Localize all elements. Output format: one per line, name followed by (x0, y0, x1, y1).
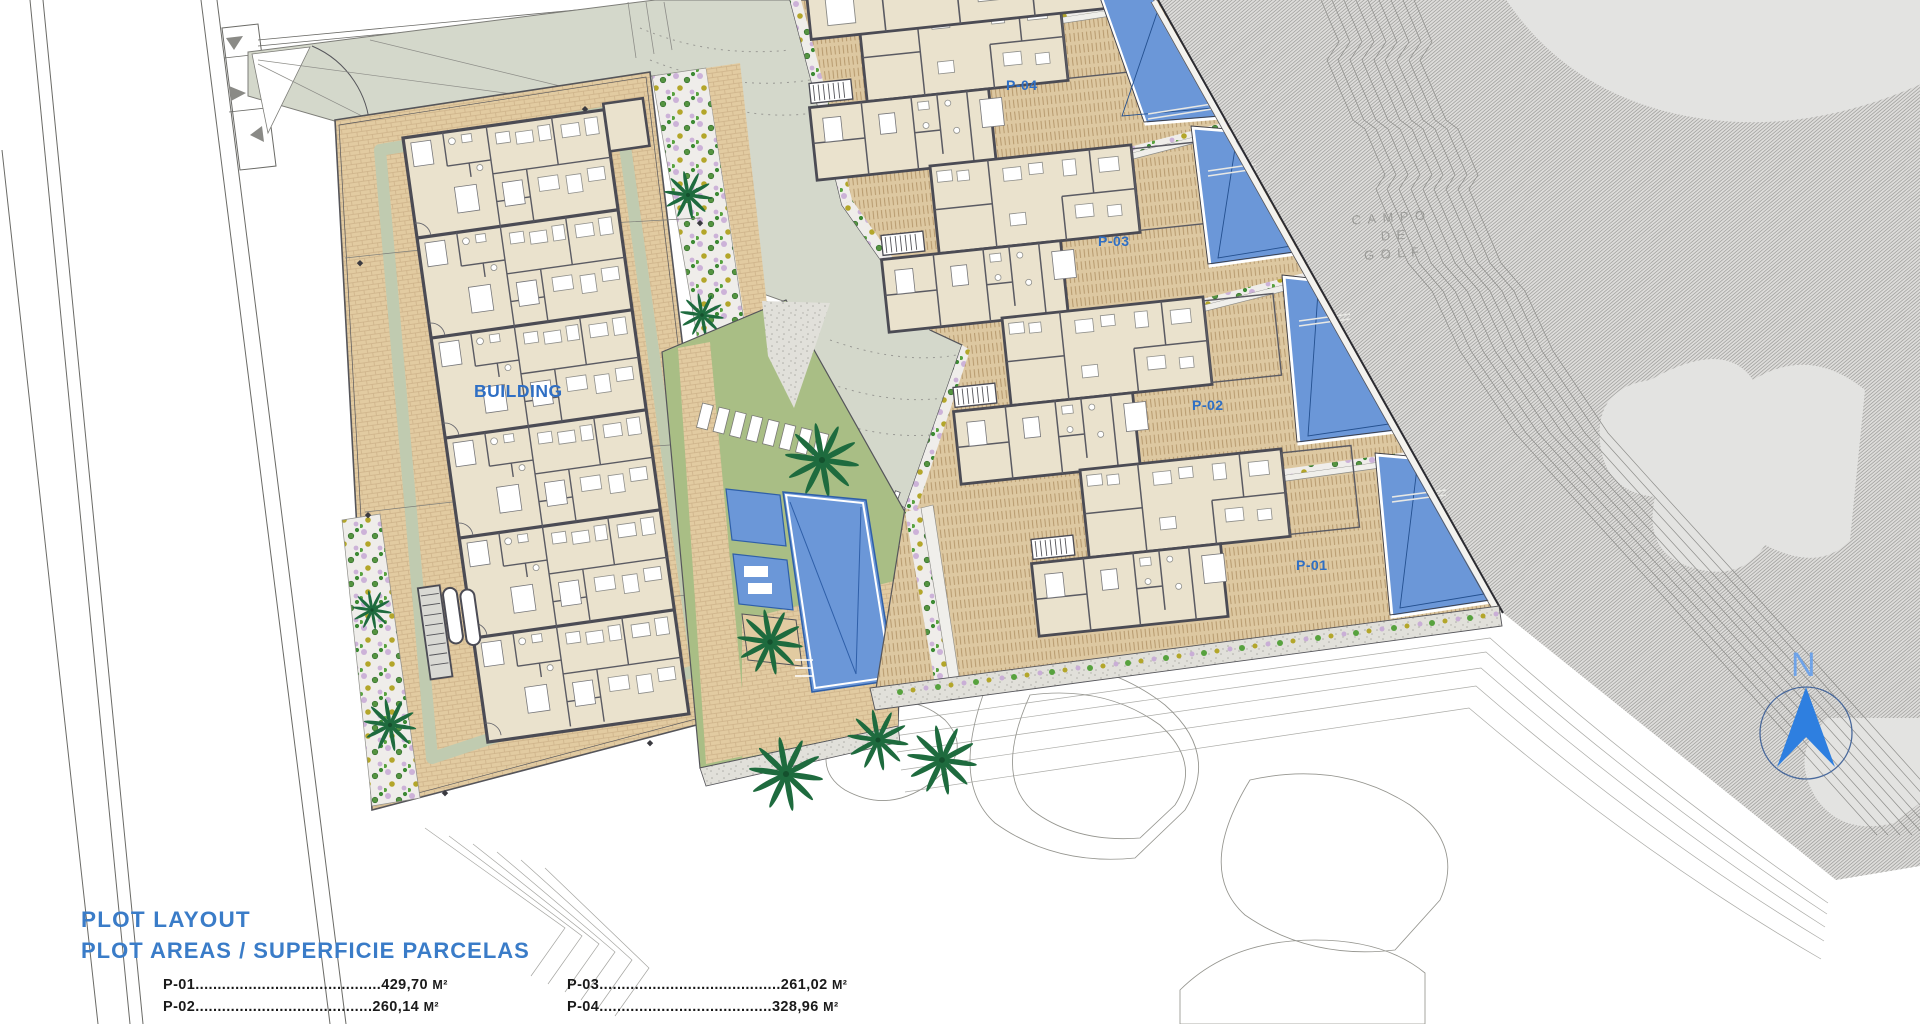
svg-text:P-03..........................: P-03....................................… (567, 977, 847, 993)
svg-text:P-02..........................: P-02....................................… (163, 999, 439, 1015)
svg-text:P-04..........................: P-04....................................… (567, 999, 839, 1015)
svg-text:P-01..........................: P-01....................................… (163, 977, 448, 993)
svg-text:PLOT LAYOUT: PLOT LAYOUT (81, 907, 251, 932)
svg-text:P-01: P-01 (1296, 557, 1328, 573)
svg-text:P-04: P-04 (1006, 77, 1038, 93)
svg-text:DE: DE (1380, 227, 1412, 244)
svg-text:P-03: P-03 (1098, 233, 1130, 249)
svg-text:BUILDING: BUILDING (474, 381, 563, 401)
svg-text:PLOT AREAS / SUPERFICIE PARCEL: PLOT AREAS / SUPERFICIE PARCELAS (81, 938, 530, 963)
svg-text:P-02: P-02 (1192, 397, 1224, 413)
svg-text:N: N (1791, 646, 1816, 684)
